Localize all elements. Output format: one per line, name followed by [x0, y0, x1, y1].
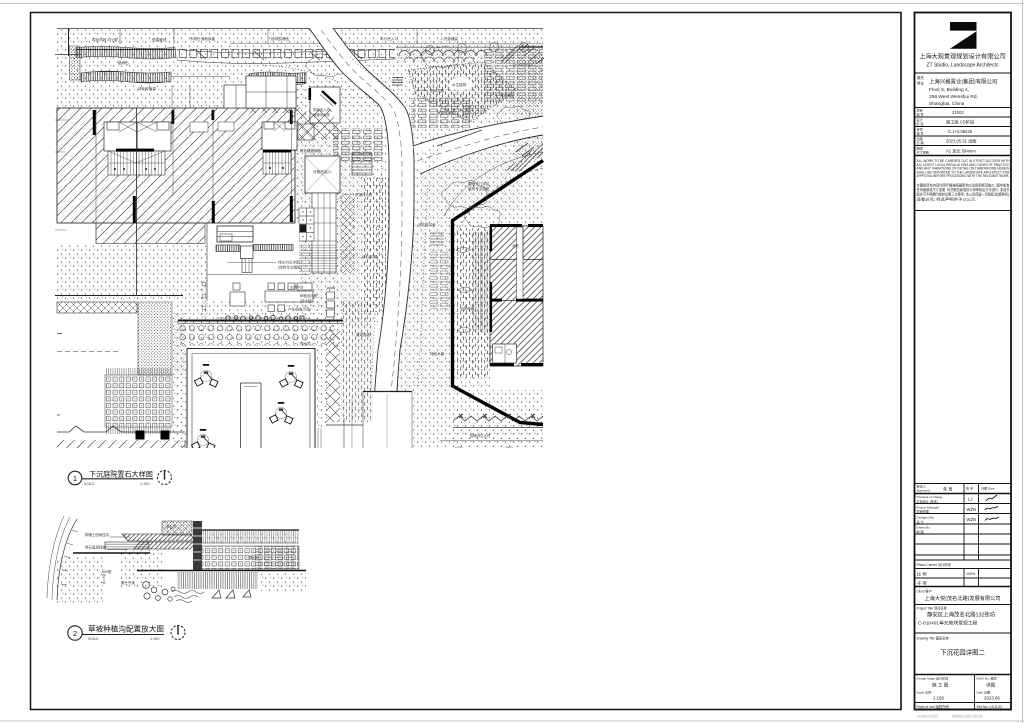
svg-text:下沉庭院置石大样图: 下沉庭院置石大样图 — [89, 470, 153, 479]
svg-text:自行车停放区: 自行车停放区 — [513, 62, 534, 67]
svg-text:日期 Date: 日期 Date — [981, 486, 995, 491]
svg-text:种植池挡墙: 种植池挡墙 — [300, 293, 318, 298]
svg-text:主创设计 [签名]: 主创设计 [签名] — [917, 498, 938, 503]
svg-text:比 例: 比 例 — [917, 571, 927, 578]
svg-text:植草砖铺装: 植草砖铺装 — [437, 110, 455, 115]
svg-text:上海大悦(茂名北路)发展有限公司: 上海大悦(茂名北路)发展有限公司 — [924, 594, 1000, 602]
svg-text:2: 2 — [73, 629, 77, 638]
svg-text:碎石垫层找坡: 碎石垫层找坡 — [85, 545, 106, 550]
svg-text:施工图 CD阶段: 施工图 CD阶段 — [946, 119, 975, 126]
svg-text:详图: 详图 — [986, 682, 996, 689]
svg-text:朱 育: 朱 育 — [943, 486, 953, 493]
svg-text:现状围墙线: 现状围墙线 — [271, 36, 289, 41]
svg-text:Right of use 版权所有: Right of use 版权所有 — [917, 704, 950, 709]
svg-text:预留管线: 预留管线 — [152, 37, 167, 42]
svg-text:市政行道树保留: 市政行道树保留 — [190, 36, 216, 41]
svg-text:车行出入口: 车行出入口 — [380, 36, 398, 41]
svg-text:排水沟见详图: 排水沟见详图 — [278, 260, 300, 265]
svg-text:1:100: 1:100 — [140, 482, 150, 486]
svg-text:水生植物: 水生植物 — [452, 82, 467, 87]
svg-text:SCALE: SCALE — [88, 637, 98, 641]
svg-text:签 字: 签 字 — [966, 486, 973, 491]
svg-text:雨水花园: 雨水花园 — [430, 88, 444, 93]
svg-text:素土夯实: 素土夯实 — [121, 580, 135, 585]
svg-text:1:100: 1:100 — [150, 637, 160, 641]
svg-text:ZT Studio, Landscape Architect: ZT Studio, Landscape Architects — [927, 63, 999, 69]
svg-text:人行道铺装: 人行道铺装 — [440, 36, 458, 41]
svg-text:本图纸所有内容均须严格按照最新地方法规和规范施工, 图中如有: 本图纸所有内容均须严格按照最新地方法规和规范施工, 图中如有 — [917, 183, 1011, 188]
svg-text:上海大观景观规划设计有限公司: 上海大观景观规划设计有限公司 — [919, 53, 1006, 61]
svg-text:SCALE: SCALE — [84, 482, 94, 486]
svg-text:子 项: 子 项 — [917, 580, 927, 587]
svg-text:C-010401单元地块景观工程: C-010401单元地块景观工程 — [918, 620, 978, 627]
svg-text:项目经理: 项目经理 — [917, 509, 929, 514]
svg-text:专项详图: 专项详图 — [500, 93, 514, 98]
svg-text:违者必究, 特此声明并予以公示.: 违者必究, 特此声明并予以公示. — [917, 196, 977, 201]
svg-text:C.1+0.06226: C.1+0.06226 — [948, 129, 973, 134]
svg-text:Drawing Title 图纸名称: Drawing Title 图纸名称 — [917, 636, 950, 641]
svg-text:消防登高面: 消防登高面 — [418, 222, 436, 227]
svg-text:APPROVAL BEFORE PROCEEDING WIT: APPROVAL BEFORE PROCEEDING WITH THE RELE… — [917, 174, 1010, 178]
svg-text:尺寸规格: 尺寸规格 — [917, 150, 930, 155]
svg-text:(详大样): (详大样) — [300, 298, 312, 303]
svg-text:Approved: Approved — [917, 489, 931, 493]
svg-text:LJ: LJ — [968, 497, 972, 502]
svg-text:建筑专业图纸: 建筑专业图纸 — [468, 186, 490, 191]
svg-text:木制平台: 木制平台 — [290, 285, 304, 290]
svg-text:编 号: 编 号 — [917, 131, 924, 136]
svg-text:1: 1 — [73, 474, 77, 483]
svg-text:特色水景: 特色水景 — [430, 351, 445, 356]
svg-text:Phase Current 设计阶段: Phase Current 设计阶段 — [917, 562, 952, 567]
svg-text:绿化种植带: 绿化种植带 — [138, 86, 156, 91]
svg-text:路缘石: 路缘石 — [118, 60, 129, 65]
svg-text:种植土回填压实: 种植土回填压实 — [85, 532, 110, 537]
svg-text:Project Title 项目名称: Project Title 项目名称 — [917, 606, 948, 611]
svg-text:竹类种植: 竹类种植 — [460, 306, 475, 311]
svg-text:Floor 5, Building 4,: Floor 5, Building 4, — [929, 87, 969, 93]
svg-text:Scale 比例: Scale 比例 — [917, 690, 932, 695]
svg-text:围墙详见大样: 围墙详见大样 — [470, 433, 491, 438]
svg-text:施 工 图: 施 工 图 — [932, 682, 949, 689]
svg-text:面许可不得翻印或转交第三方使用, 本公司保留一切版权及[解释: 面许可不得翻印或转交第三方使用, 本公司保留一切版权及[解释权], — [917, 192, 1010, 197]
svg-text:DWG No. 图号: DWG No. 图号 — [977, 676, 997, 681]
svg-text:消防: 消防 — [512, 243, 520, 248]
svg-text:日 期: 日 期 — [917, 140, 924, 145]
svg-text:缘石坡道: 缘石坡道 — [362, 254, 376, 259]
svg-text:WZN: WZN — [967, 507, 977, 512]
svg-text:编 号: 编 号 — [917, 112, 924, 117]
svg-text:(结构专业图纸): (结构专业图纸) — [278, 265, 302, 270]
svg-text:Sht No. LS-5.02: Sht No. LS-5.02 — [977, 705, 1003, 709]
svg-text:Drafted 2023: Drafted 2023 — [917, 715, 938, 719]
svg-text:草坡种植沟配置放大图: 草坡种植沟配置放大图 — [88, 624, 164, 634]
svg-text:Date 日期: Date 日期 — [977, 690, 991, 695]
svg-text:下沉花园详图二: 下沉花园详图二 — [940, 648, 985, 657]
svg-text:制 图: 制 图 — [917, 529, 924, 534]
svg-text:透水砖: 透水砖 — [248, 555, 259, 560]
svg-text:A1 加长 594mm: A1 加长 594mm — [946, 148, 976, 155]
svg-text:100%: 100% — [966, 572, 976, 576]
svg-text:卵石沟: 卵石沟 — [166, 524, 177, 529]
svg-text:任何细部或尺寸变更, 均须报告景观设计师审批后方可进行, 未: 任何细部或尺寸变更, 均须报告景观设计师审批后方可进行, 未经书 — [917, 187, 1011, 192]
svg-text:Plotted 2023.06.05: Plotted 2023.06.05 — [952, 715, 982, 719]
svg-text:阶 段: 阶 段 — [917, 121, 924, 126]
svg-text:围墙大门详见: 围墙大门详见 — [468, 181, 490, 186]
svg-text:静安区上海茂名北路132街坊: 静安区上海茂名北路132街坊 — [927, 611, 996, 619]
svg-text:600宽: 600宽 — [102, 569, 112, 574]
svg-text:2023.06: 2023.06 — [984, 696, 1000, 701]
svg-text:设 计: 设 计 — [917, 519, 924, 524]
svg-text:委托: 委托 — [917, 75, 924, 80]
svg-text:上海兴格置业(集团)有限公司: 上海兴格置业(集团)有限公司 — [929, 78, 997, 86]
svg-text:Shanghai, China: Shanghai, China — [929, 101, 965, 107]
svg-text:单位: 单位 — [917, 81, 924, 86]
svg-text:WZN: WZN — [967, 517, 977, 522]
svg-text:现状市政人行道: 现状市政人行道 — [92, 37, 118, 42]
svg-text:设备吊装口: 设备吊装口 — [313, 169, 331, 174]
svg-text:2023.05.31 出图: 2023.05.31 出图 — [946, 138, 977, 145]
svg-text:1:150: 1:150 — [933, 696, 945, 701]
svg-text:21002: 21002 — [952, 110, 964, 115]
svg-text:258 West Wenshui Rd,: 258 West Wenshui Rd, — [929, 94, 978, 100]
svg-text:户外桌椅(示意): 户外桌椅(示意) — [288, 307, 311, 312]
svg-text:Design Stage 设计阶段: Design Stage 设计阶段 — [917, 676, 949, 681]
svg-text:旱溪详大样: 旱溪详大样 — [355, 192, 373, 197]
svg-text:Client 客户: Client 客户 — [917, 589, 932, 594]
svg-text:特色格栅景墙: 特色格栅景墙 — [300, 148, 321, 153]
